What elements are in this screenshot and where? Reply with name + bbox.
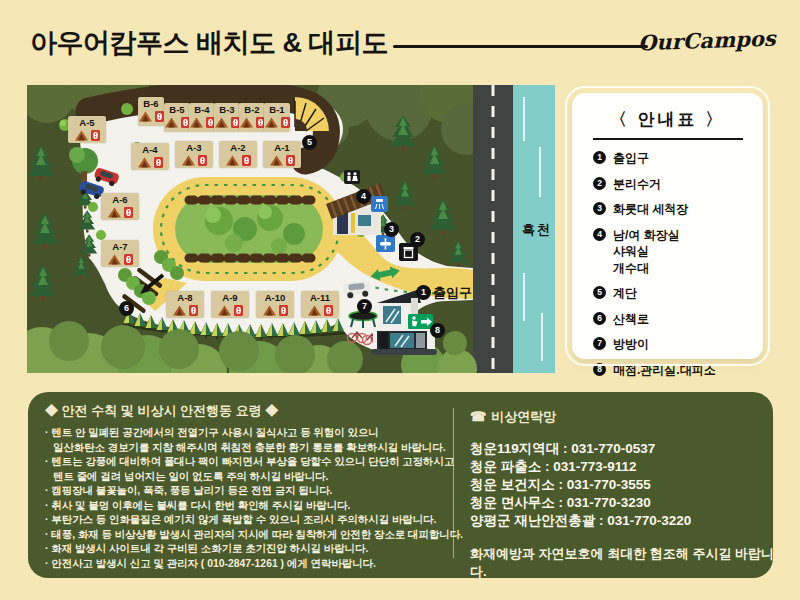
tent-icon [270, 155, 283, 166]
tent-icon [263, 305, 276, 316]
tent-icon [165, 117, 178, 128]
legend-item: 1출입구 [593, 150, 763, 167]
tent-icon [182, 155, 195, 166]
site-card: B-2 [239, 103, 265, 132]
brand-logo: OurCampos [638, 26, 776, 56]
legend-num-badge: 4 [593, 228, 606, 241]
site-card: A-11 [301, 291, 339, 318]
site-card: A-1 [263, 141, 301, 168]
map-marker-entrance: 1 [416, 285, 431, 300]
site-card: A-10 [256, 291, 294, 318]
power-outlet-icon [91, 130, 100, 141]
legend-num-badge: 7 [593, 337, 606, 350]
contacts-title: ☎비상연락망 [470, 408, 786, 426]
tent-icon [308, 305, 321, 316]
site-card: A-4 [131, 143, 169, 170]
tent-icon [173, 305, 186, 316]
map-marker-trail: 6 [119, 301, 134, 316]
stream-label: 흑천 [522, 221, 552, 239]
power-outlet-icon [324, 305, 333, 316]
legend-list: 1출입구 2분리수거 3화롯대 세척장 4 남/여 화장실 샤워실 개수대 5계… [593, 150, 763, 378]
campground-map: B-6 B-5 B-4 B-3 B-2 B-1 A-5 A-4 A-3 A-2 … [27, 85, 555, 373]
safety-rules-section: ◆ 안전 수칙 및 비상시 안전행동 요령 ◆ · 텐트 안 밀폐된 공간에서의… [45, 402, 465, 571]
legend-num-badge: 2 [593, 177, 606, 190]
site-card: A-7 [101, 240, 139, 267]
legend-item: 2분리수거 [593, 176, 763, 193]
tent-icon [190, 117, 203, 128]
exit-sign-icon [408, 314, 433, 329]
tent-icon [138, 157, 151, 168]
map-marker-shop: 8 [430, 323, 445, 338]
safety-title: ◆ 안전 수칙 및 비상시 안전행동 요령 ◆ [45, 402, 465, 420]
contact-entry: 청운 면사무소 : 031-770-3230 [470, 494, 786, 512]
power-outlet-icon [124, 207, 133, 218]
legend-item: 8매점.관리실.대피소 [593, 362, 763, 379]
legend-num-badge: 5 [593, 286, 606, 299]
map-marker-trampoline: 7 [357, 299, 372, 314]
map-terrain [27, 85, 555, 373]
safety-line: 텐트 줄에 걸려 넘어지는 일이 없도록 주의 하시길 바랍니다. [45, 470, 465, 485]
riverside-road [473, 85, 513, 373]
tent-icon [139, 111, 152, 122]
power-outlet-icon [155, 111, 164, 122]
power-outlet-icon [286, 155, 295, 166]
contact-entry: 청운 보건지소 : 031-770-3555 [470, 476, 786, 494]
safety-line: · 취사 및 불멍 이후에는 불씨를 다시 한번 확인해 주시길 바랍니다. [45, 499, 465, 514]
legend-panel: 〈 안내표 〉 1출입구 2분리수거 3화롯대 세척장 4 남/여 화장실 샤워… [572, 93, 763, 359]
phone-icon: ☎ [470, 409, 486, 424]
site-card: A-6 [101, 193, 139, 220]
safety-line: · 텐트는 강풍에 대비하여 폴대나 팩이 빠지면서 부상을 당할수 있으니 단… [45, 455, 465, 470]
sink-sign-icon [376, 235, 395, 252]
tent-icon [215, 117, 228, 128]
tent-icon [240, 117, 253, 128]
contact-entry: 청운119지역대 : 031-770-0537 [470, 440, 786, 458]
tent-icon [108, 254, 121, 265]
contacts-list: 청운119지역대 : 031-770-0537 청운 파출소 : 031-773… [470, 440, 786, 530]
tent-icon [226, 155, 239, 166]
info-panel: ◆ 안전 수칙 및 비상시 안전행동 요령 ◆ · 텐트 안 밀폐된 공간에서의… [28, 392, 773, 578]
legend-num-badge: 1 [593, 151, 606, 164]
contact-entry: 청운 파출소 : 031-773-9112 [470, 458, 786, 476]
safety-line: · 안전사고 발생시 신고 및 관리자 ( 010-2847-1261 ) 에게… [45, 557, 465, 572]
tent-icon [108, 207, 121, 218]
legend-title: 〈 안내표 〉 [572, 108, 763, 131]
power-outlet-icon [198, 155, 207, 166]
legend-num-badge: 8 [593, 363, 606, 376]
site-card: B-5 [164, 103, 190, 132]
map-marker-restroom: 4 [356, 189, 371, 204]
power-outlet-icon [154, 157, 163, 168]
legend-num-badge: 6 [593, 312, 606, 325]
legend-divider [593, 138, 743, 140]
map-marker-stairs: 5 [302, 135, 317, 150]
safety-line: · 화재 발생시 사이트내 각 구비된 소화기로 초기진압 하시길 바랍니다. [45, 542, 465, 557]
site-card: A-8 [166, 291, 204, 318]
site-card: A-9 [211, 291, 249, 318]
restroom-sign-icon [344, 170, 360, 184]
legend-item: 6산책로 [593, 311, 763, 328]
power-outlet-icon [242, 155, 251, 166]
power-outlet-icon [279, 305, 288, 316]
power-outlet-icon [281, 117, 290, 128]
legend-item: 3화롯대 세척장 [593, 201, 763, 218]
legend-item: 4 남/여 화장실 샤워실 개수대 [593, 227, 763, 277]
site-card: B-4 [189, 103, 215, 132]
cooperation-note: 화재예방과 자연보호에 최대한 협조해 주시길 바랍니다. [470, 545, 786, 581]
tent-icon [75, 130, 88, 141]
emergency-contacts-section: ☎비상연락망 청운119지역대 : 031-770-0537 청운 파출소 : … [470, 408, 786, 581]
legend-item: 5계단 [593, 285, 763, 302]
poster: 아우어캄푸스 배치도 & 대피도 OurCampos [0, 0, 800, 600]
panel-divider [453, 408, 454, 558]
safety-line: · 캠핑장내 불꽃놀이, 폭죽, 풍등 날리기 등은 전면 금지 됩니다. [45, 484, 465, 499]
legend-num-badge: 3 [593, 202, 606, 215]
site-card: A-5 [68, 116, 106, 143]
title-divider [393, 45, 648, 48]
site-card: A-2 [219, 141, 257, 168]
map-marker-washing: 3 [384, 222, 399, 237]
safety-line: · 부탄가스 등 인화물질은 예기치 않게 폭발할 수 있으니 조리시 주의하시… [45, 513, 465, 528]
contact-entry: 양평군 재난안전총괄 : 031-770-3220 [470, 512, 786, 530]
tent-icon [265, 117, 278, 128]
safety-line: · 텐트 안 밀폐된 공간에서의 전열기구 사용시 질식사고 등 위험이 있으니 [45, 426, 465, 441]
entrance-label: 출입구 [433, 284, 472, 302]
site-card: B-3 [214, 103, 240, 132]
site-card: B-6 [138, 97, 164, 126]
power-outlet-icon [234, 305, 243, 316]
page-title: 아우어캄푸스 배치도 & 대피도 [30, 25, 388, 61]
site-card: B-1 [264, 103, 290, 132]
site-card: A-3 [175, 141, 213, 168]
safety-line: 일산화탄소 경보기를 지참 해주시며 취침전 충분한 환기 통로를 확보하시길 … [45, 441, 465, 456]
legend-item: 7방방이 [593, 336, 763, 353]
power-outlet-icon [189, 305, 198, 316]
tent-icon [218, 305, 231, 316]
map-marker-recycling: 2 [410, 232, 425, 247]
shower-sign-icon [371, 196, 388, 212]
safety-line: · 태풍, 화재 등 비상상황 발생시 관리자의 지시에 따라 침착하게 안전한… [45, 528, 465, 543]
power-outlet-icon [124, 254, 133, 265]
